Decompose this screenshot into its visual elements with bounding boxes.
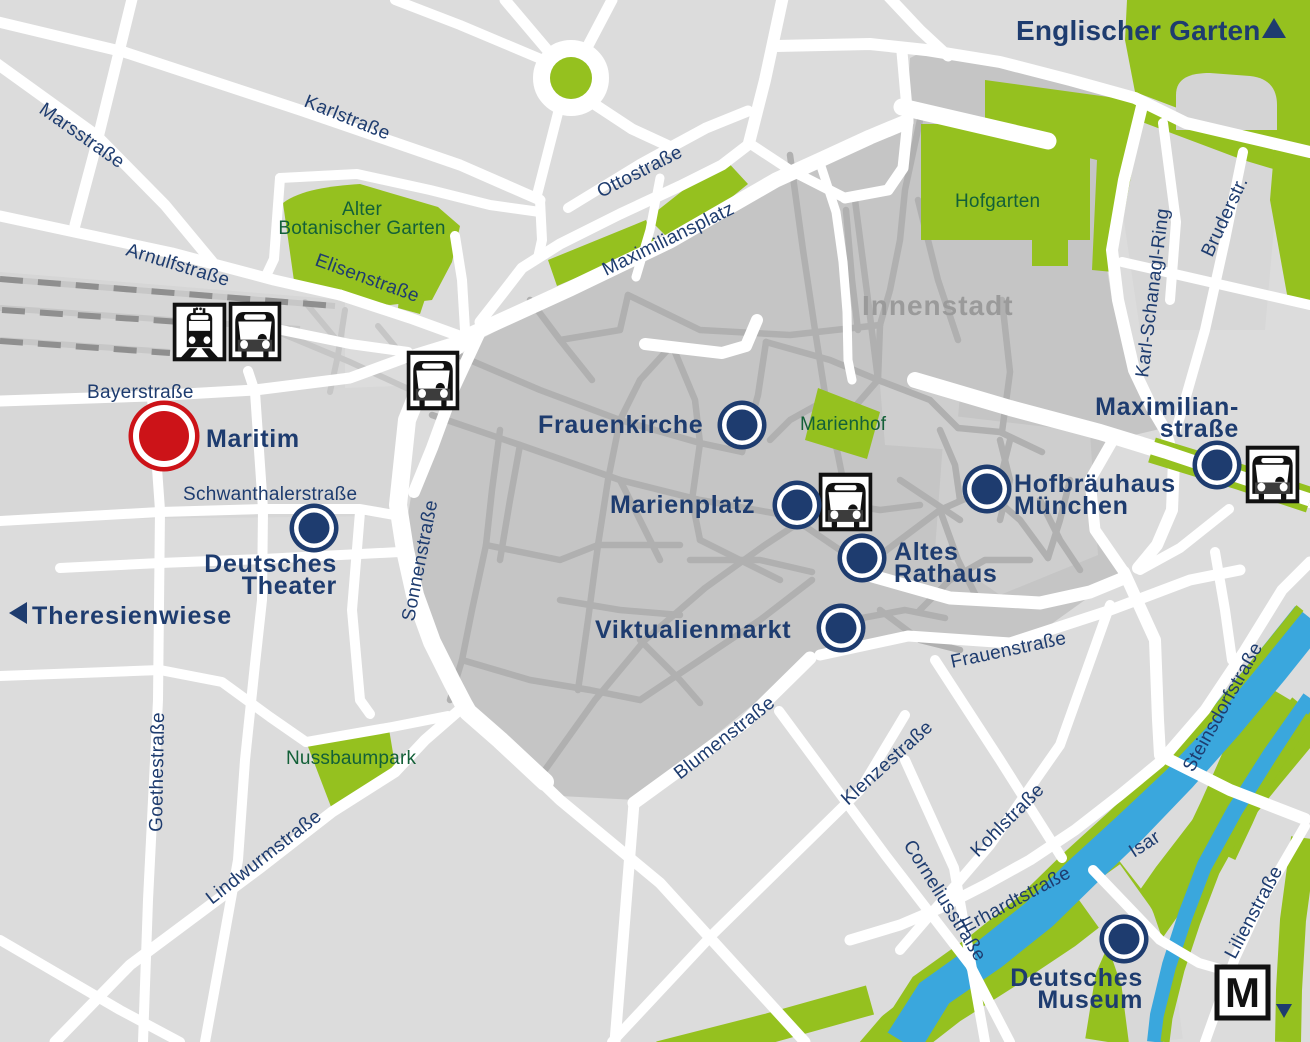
svg-text:Alter: Alter [342, 199, 383, 220]
svg-text:Frauenkirche: Frauenkirche [538, 411, 703, 439]
svg-text:München: München [1014, 492, 1129, 520]
svg-text:Botanischer Garten: Botanischer Garten [278, 218, 445, 239]
svg-text:Schwanthalerstraße: Schwanthalerstraße [183, 484, 357, 505]
svg-text:Bayerstraße: Bayerstraße [87, 382, 194, 403]
svg-text:Theater: Theater [242, 572, 337, 600]
svg-text:Viktualienmarkt: Viktualienmarkt [595, 616, 791, 644]
svg-text:Maritim: Maritim [206, 425, 300, 453]
svg-text:Goethestraße: Goethestraße [146, 712, 169, 832]
svg-text:Innenstadt: Innenstadt [862, 290, 1014, 321]
svg-text:Englischer Garten: Englischer Garten [1016, 15, 1261, 46]
svg-text:Museum: Museum [1037, 986, 1143, 1014]
svg-text:Marienhof: Marienhof [800, 414, 887, 435]
svg-text:straße: straße [1160, 415, 1239, 443]
svg-text:Marienplatz: Marienplatz [610, 491, 755, 519]
svg-text:Rathaus: Rathaus [894, 560, 998, 588]
svg-text:M: M [1225, 969, 1260, 1016]
svg-text:Theresienwiese: Theresienwiese [32, 602, 232, 630]
svg-text:Nussbaumpark: Nussbaumpark [286, 748, 416, 769]
svg-text:Hofgarten: Hofgarten [955, 191, 1040, 212]
